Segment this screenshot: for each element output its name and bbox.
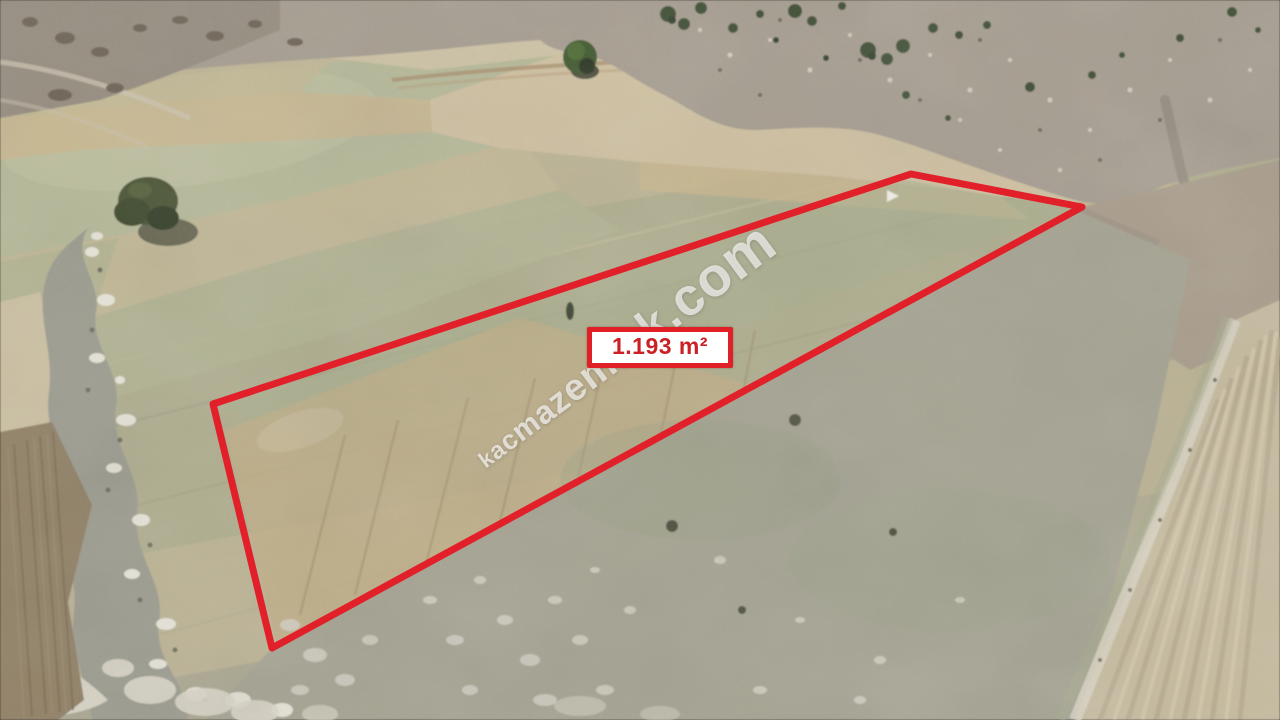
area-label-box: 1.193 m² <box>587 327 733 368</box>
aerial-photo: kacmazemlak.com 1.193 m² <box>0 0 1280 720</box>
area-label-text: 1.193 m² <box>612 335 708 358</box>
